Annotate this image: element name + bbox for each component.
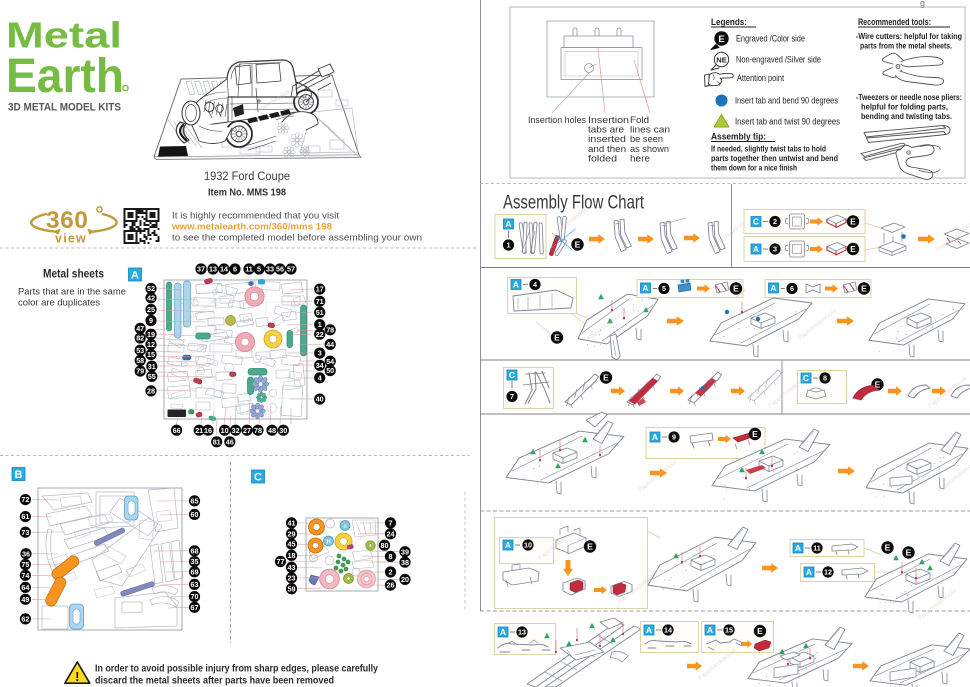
svg-text:45: 45 [288,540,296,549]
svg-text:11: 11 [813,544,821,553]
svg-text:≡: ≡ [343,524,347,530]
svg-text:55: 55 [148,372,156,381]
svg-text:C: C [254,471,262,483]
svg-text:Recommended tools:: Recommended tools: [858,17,931,28]
svg-text:53: 53 [136,346,144,355]
svg-text:A: A [707,625,713,635]
svg-text:C: C [509,370,515,380]
svg-text:26: 26 [387,581,395,590]
svg-text:14: 14 [664,626,672,635]
svg-text:E: E [850,244,856,254]
svg-text:71: 71 [316,297,324,306]
svg-text:E: E [885,543,891,553]
svg-text:bending and twisting tabs.: bending and twisting tabs. [861,111,952,121]
svg-text:21: 21 [195,426,203,435]
svg-text:25: 25 [147,305,155,314]
svg-text:E: E [603,373,609,383]
svg-text:73: 73 [21,528,29,537]
svg-text:63: 63 [191,580,199,589]
svg-text:37: 37 [197,265,205,274]
svg-text:A: A [642,283,648,293]
svg-text:A: A [131,269,139,281]
svg-text:18: 18 [288,551,296,560]
svg-text:E: E [587,542,593,552]
svg-text:36: 36 [22,549,30,558]
svg-text:Fold: Fold [630,115,649,125]
svg-text:30: 30 [279,426,287,435]
svg-text:NE: NE [716,56,726,65]
svg-text:4: 4 [318,373,322,382]
svg-text:51: 51 [316,308,324,317]
svg-text:68: 68 [191,546,199,555]
svg-text:E: E [752,429,758,439]
svg-text:Engraved /Color side: Engraved /Color side [736,34,805,44]
svg-text:42: 42 [147,293,155,302]
svg-text:48: 48 [268,426,276,435]
svg-text:In order to avoid possible inj: In order to avoid possible injury from s… [95,664,379,675]
svg-text:Earth: Earth [6,50,124,103]
svg-text:23: 23 [288,573,296,582]
svg-text:15: 15 [725,626,733,635]
svg-text:27: 27 [243,426,251,435]
svg-text:3D METAL MODEL KITS: 3D METAL MODEL KITS [8,102,121,114]
svg-text:46: 46 [226,437,234,446]
svg-text:www.metalearth.com/360/mms 198: www.metalearth.com/360/mms 198 [171,222,333,233]
svg-text:E: E [575,240,581,250]
svg-text:11: 11 [245,265,253,274]
svg-text:9: 9 [672,433,676,442]
svg-text:6: 6 [233,265,237,274]
svg-text:Insert tab and twist 90 degree: Insert tab and twist 90 degrees [735,117,841,127]
svg-text:Non-engraved /Silver side: Non-engraved /Silver side [736,55,821,65]
svg-text:discard the metal sheets after: discard the metal sheets after parts hav… [95,676,334,687]
svg-text:13: 13 [209,265,217,274]
svg-text:61: 61 [21,512,29,521]
svg-text:A: A [770,283,776,293]
svg-text:8: 8 [389,552,393,561]
svg-text:helpful for folding parts,: helpful for folding parts, [861,102,948,112]
svg-text:E: E [718,34,724,45]
svg-text:65: 65 [191,496,199,505]
svg-text:Metal sheets: Metal sheets [43,268,104,281]
svg-text:6: 6 [790,284,794,293]
svg-text:7: 7 [389,518,393,527]
svg-text:A: A [500,627,506,637]
svg-text:57: 57 [287,265,295,274]
svg-text:17: 17 [316,285,324,294]
svg-text:9: 9 [149,316,153,325]
svg-text:1: 1 [318,320,322,329]
svg-text:A: A [753,244,759,254]
svg-text:Legends:: Legends: [711,17,747,28]
svg-text:78: 78 [326,325,334,334]
svg-text:A: A [505,219,511,229]
svg-text:5: 5 [662,284,666,293]
svg-text:66: 66 [173,426,181,435]
svg-text:49: 49 [21,595,29,604]
svg-text:58: 58 [136,356,144,365]
svg-text:2: 2 [389,568,393,577]
svg-text:C: C [753,217,759,227]
svg-text:and then: and then [588,144,626,154]
svg-text:A: A [513,280,519,290]
svg-text:parts together then untwist an: parts together then untwist and bend [711,153,838,163]
svg-text:70: 70 [191,592,199,601]
svg-text:Insertion: Insertion [588,115,629,125]
svg-text:Attention point: Attention point [737,73,784,83]
svg-text:-Tweezers or needle nose plier: -Tweezers or needle nose pliers: [856,92,962,102]
svg-text:8: 8 [823,374,827,383]
svg-text:Insert tab and bend 90 degrees: Insert tab and bend 90 degrees [735,96,838,106]
svg-text:60: 60 [191,510,199,519]
svg-text:A: A [806,567,812,577]
svg-text:360: 360 [46,207,88,234]
svg-text:12: 12 [147,340,155,349]
svg-text:35: 35 [191,557,199,566]
svg-text:E: E [906,548,912,558]
svg-text:38: 38 [401,558,409,567]
svg-text:82: 82 [136,334,144,343]
svg-text:20: 20 [401,575,409,584]
svg-text:10: 10 [524,541,532,550]
svg-text:Assembly Flow Chart: Assembly Flow Chart [503,192,644,214]
svg-text:50: 50 [326,366,334,375]
svg-text:B: B [15,469,23,481]
svg-text:-Wire cutters: helpful for ta: -Wire cutters: helpful for taking [856,31,962,41]
svg-text:E: E [850,217,856,227]
svg-text:If needed, slightly twist tabs: If needed, slightly twist tabs to hold [711,144,826,154]
svg-text:inserted: inserted [588,134,626,144]
svg-text:19: 19 [147,330,155,339]
svg-text:to see the completed model bef: to see the completed model before assemb… [172,233,422,244]
svg-text:29: 29 [288,529,296,538]
svg-text:15: 15 [147,350,155,359]
svg-text:3: 3 [773,245,777,254]
svg-text:It is highly recommended that: It is highly recommended that you visit [172,211,339,222]
svg-text:80: 80 [381,541,389,550]
svg-text:33: 33 [266,265,274,274]
svg-text:64: 64 [21,583,29,592]
svg-text:E: E [757,626,763,636]
svg-text:54: 54 [326,357,334,366]
svg-text:color are duplicates: color are duplicates [18,298,100,309]
svg-text:74: 74 [21,571,29,580]
svg-text:A: A [652,432,658,442]
svg-text:75: 75 [21,560,29,569]
svg-text:7: 7 [510,392,514,401]
svg-text:39: 39 [401,547,409,556]
svg-text:47: 47 [136,324,144,333]
svg-text:as shown: as shown [630,144,669,154]
svg-text:Assembly tip:: Assembly tip: [711,132,766,143]
svg-text:A: A [795,543,801,553]
svg-text:12: 12 [824,568,832,577]
svg-text:31: 31 [148,362,156,371]
svg-text:40: 40 [316,395,324,404]
svg-text:E: E [554,333,560,343]
svg-text:32: 32 [232,426,240,435]
svg-text:g: g [920,0,925,8]
svg-text:E: E [733,284,739,294]
svg-text:56: 56 [276,265,284,274]
svg-text:4: 4 [533,280,537,289]
svg-text:72: 72 [21,495,29,504]
svg-text:A: A [505,540,511,550]
svg-text:be seen: be seen [630,134,663,144]
svg-text:3: 3 [318,349,322,358]
svg-text:parts from the metal sheets.: parts from the metal sheets. [860,41,952,51]
svg-text:10: 10 [221,426,229,435]
svg-text:24: 24 [387,529,395,538]
svg-text:H: H [326,540,330,546]
svg-text:78: 78 [254,426,262,435]
svg-text:77: 77 [277,557,285,566]
svg-text:28: 28 [147,386,155,395]
svg-text:67: 67 [191,603,199,612]
svg-text:A: A [646,625,652,635]
svg-text:81: 81 [213,437,221,446]
svg-text:Parts that are in the same: Parts that are in the same [18,287,126,298]
svg-text:43: 43 [288,563,296,572]
svg-text:tabs are: tabs are [588,125,624,135]
svg-text:52: 52 [147,284,155,293]
svg-text:E: E [861,284,867,294]
svg-text:62: 62 [21,614,29,623]
svg-text:41: 41 [288,518,296,527]
svg-text:view: view [55,232,87,246]
svg-text:69: 69 [191,567,199,576]
svg-text:22: 22 [316,330,324,339]
svg-text:59: 59 [288,584,296,593]
svg-text:1: 1 [507,241,511,250]
svg-text:2: 2 [773,217,777,226]
svg-text:13: 13 [518,628,526,637]
svg-text:16: 16 [204,426,212,435]
svg-text:folded: folded [588,153,617,163]
svg-text:them down for a nice finish: them down for a nice finish [711,163,797,173]
svg-text:lines can: lines can [630,125,670,135]
svg-text:79: 79 [136,367,144,376]
svg-text:44: 44 [326,340,334,349]
svg-text:Insertion holes: Insertion holes [528,115,586,125]
svg-text:1932 Ford Coupe: 1932 Ford Coupe [204,169,290,183]
svg-text:Item No. MMS 198: Item No. MMS 198 [208,188,286,199]
svg-text:!: ! [75,669,79,684]
svg-text:5: 5 [257,265,261,274]
svg-text:34: 34 [316,361,324,370]
svg-text:14: 14 [220,265,228,274]
svg-text:here: here [630,153,650,163]
